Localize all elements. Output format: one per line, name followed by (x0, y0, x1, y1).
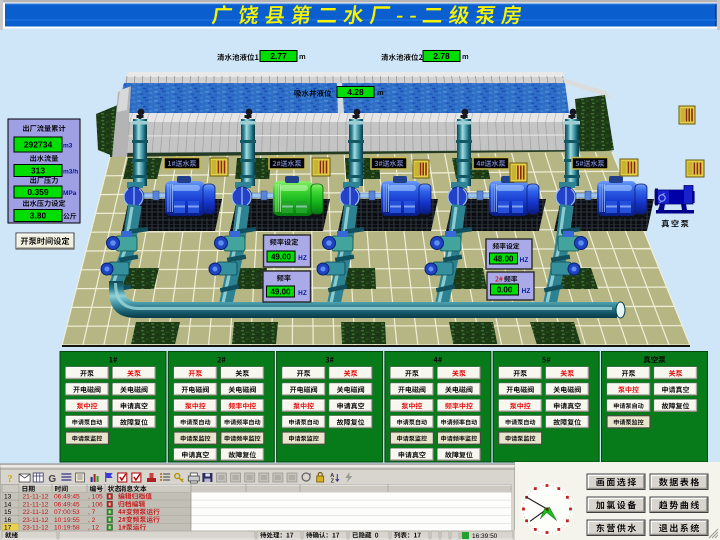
svg-text:49.00: 49.00 (271, 253, 292, 262)
svg-text:3.80: 3.80 (30, 211, 47, 221)
svg-text:15: 15 (4, 509, 12, 516)
svg-text:MPa: MPa (63, 190, 77, 197)
svg-text:2.78: 2.78 (433, 51, 450, 61)
svg-text:16: 16 (4, 517, 12, 524)
svg-text:292734: 292734 (24, 140, 53, 150)
svg-text:16:39:50: 16:39:50 (472, 533, 498, 540)
svg-text:m3/h: m3/h (63, 168, 78, 175)
svg-text:313: 313 (31, 166, 45, 176)
svg-text:21-11-12: 21-11-12 (23, 494, 49, 501)
svg-text:0.00: 0.00 (497, 286, 513, 295)
svg-text:, 2: , 2 (88, 517, 96, 524)
svg-text:13: 13 (4, 494, 12, 501)
svg-text:, 7: , 7 (88, 509, 96, 516)
svg-text:0.359: 0.359 (27, 187, 49, 197)
svg-text:?: ? (8, 474, 13, 485)
svg-text:21-11-12: 21-11-12 (23, 501, 49, 508)
svg-text:10:19:55: 10:19:55 (54, 517, 80, 524)
svg-text:4.28: 4.28 (347, 87, 364, 97)
svg-text:07:00:53: 07:00:53 (54, 509, 80, 516)
svg-text:14: 14 (4, 501, 12, 508)
svg-text:22-11-12: 22-11-12 (23, 509, 49, 516)
svg-text:, 106: , 106 (88, 501, 103, 508)
svg-text:m3: m3 (63, 142, 73, 149)
svg-text:06:49:45: 06:49:45 (54, 494, 80, 501)
svg-text:G: G (48, 474, 56, 485)
svg-text:, 105: , 105 (88, 494, 103, 501)
svg-text:49.00: 49.00 (270, 288, 291, 297)
svg-text:23-11-12: 23-11-12 (23, 517, 49, 524)
svg-text:06:49:45: 06:49:45 (54, 501, 80, 508)
svg-text:2.77: 2.77 (270, 51, 287, 61)
svg-text:48.00: 48.00 (493, 255, 514, 264)
